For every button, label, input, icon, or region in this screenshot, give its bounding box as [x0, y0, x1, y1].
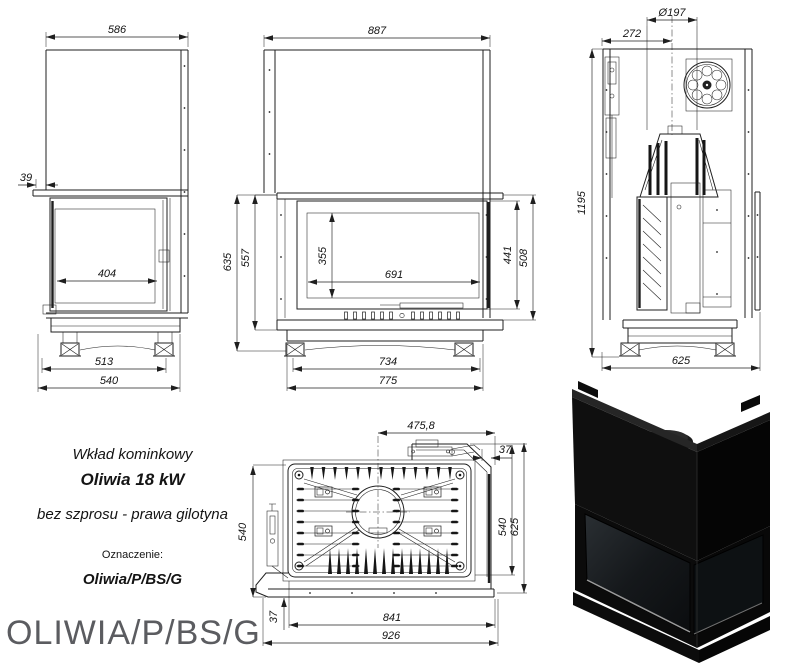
dim-355: 355: [317, 246, 329, 265]
dim-37-right: 37: [499, 444, 512, 456]
front-view-body: [264, 50, 503, 322]
render-3d-fireplace: [572, 381, 770, 663]
dim-625: 625: [672, 355, 691, 367]
dim-691: 691: [385, 269, 403, 281]
dim-441: 441: [502, 246, 514, 264]
rib-rows: [296, 488, 459, 568]
dim-37-front: 37: [268, 610, 280, 623]
foot: [59, 343, 81, 356]
dim-586: 586: [108, 24, 127, 36]
top-fin-row: [310, 467, 452, 480]
drawing-sheet: 586 39 404 513 540: [0, 0, 800, 663]
product-model: Oliwia 18 kW: [20, 470, 245, 490]
dim-841: 841: [383, 612, 401, 624]
dim-475-8: 475,8: [407, 420, 435, 432]
view-right-side: Ø197 272 1195 625: [576, 7, 760, 371]
foot: [284, 343, 306, 356]
dim-508: 508: [518, 248, 530, 267]
footer-model-code: OLIWIA/P/BS/G: [6, 614, 261, 653]
dim-540-right: 540: [497, 517, 509, 536]
dim-39: 39: [20, 172, 32, 184]
air-vent-row: [345, 312, 460, 319]
top-plate: [283, 436, 475, 581]
dim-540-side: 540: [100, 375, 119, 387]
dim-635: 635: [222, 252, 234, 271]
left-view-base: [46, 313, 188, 356]
side-latch-bracket: [267, 504, 288, 578]
right-view-base: [619, 320, 737, 356]
right-view-dimensions: Ø197 272 1195 625: [576, 7, 760, 371]
designation-code: Oliwia/P/BS/G: [20, 571, 245, 588]
side-glass-pane: [55, 209, 155, 303]
door-handle: [400, 303, 463, 308]
glass-edge-panel: [637, 197, 667, 310]
left-view-dimensions: 586 39 404 513 540: [18, 24, 188, 392]
foot: [153, 343, 175, 356]
dim-926: 926: [382, 630, 401, 642]
damper-mechanism: [605, 57, 619, 198]
foot: [714, 343, 736, 356]
left-view-door: [43, 198, 170, 314]
dim-775: 775: [379, 375, 398, 387]
right-view-body: [603, 49, 760, 320]
dim-734: 734: [379, 356, 397, 368]
view-left-side: 586 39 404 513 540: [18, 24, 188, 392]
dim-513: 513: [95, 356, 114, 368]
bottom-fin-row: [328, 548, 449, 574]
foot: [619, 343, 641, 356]
dim-272: 272: [622, 28, 641, 40]
flue-fan-assembly: [647, 16, 732, 135]
dim-887: 887: [368, 25, 387, 37]
product-variant: bez szprosu - prawa gilotyna: [20, 506, 245, 523]
view-front: 887 635 557 355 691 441 508 734 775: [222, 25, 536, 391]
designation-label: Oznaczenie:: [20, 549, 245, 561]
clamp: [315, 487, 332, 497]
dim-1195: 1195: [576, 190, 588, 215]
clamp: [424, 526, 441, 536]
clamp: [424, 487, 441, 497]
foot: [453, 343, 475, 356]
view-top: 475,8 37 540 540 625 37 841 926: [237, 420, 527, 646]
product-info-block: Wkład kominkowy Oliwia 18 kW bez szprosu…: [20, 446, 245, 588]
side-glass-frame: [50, 198, 167, 311]
dim-557: 557: [240, 248, 252, 267]
dim-404: 404: [98, 268, 116, 280]
clamp: [315, 526, 332, 536]
product-category: Wkład kominkowy: [20, 446, 245, 463]
guillotine-latch: [408, 440, 480, 456]
front-glass-pane: [307, 213, 479, 298]
front-view-base: [277, 320, 503, 356]
right-view-panels: [637, 183, 731, 313]
dim-625-top-view: 625: [509, 517, 521, 536]
firebox-profile: [640, 126, 718, 197]
dim-flue-diameter: Ø197: [658, 7, 687, 19]
